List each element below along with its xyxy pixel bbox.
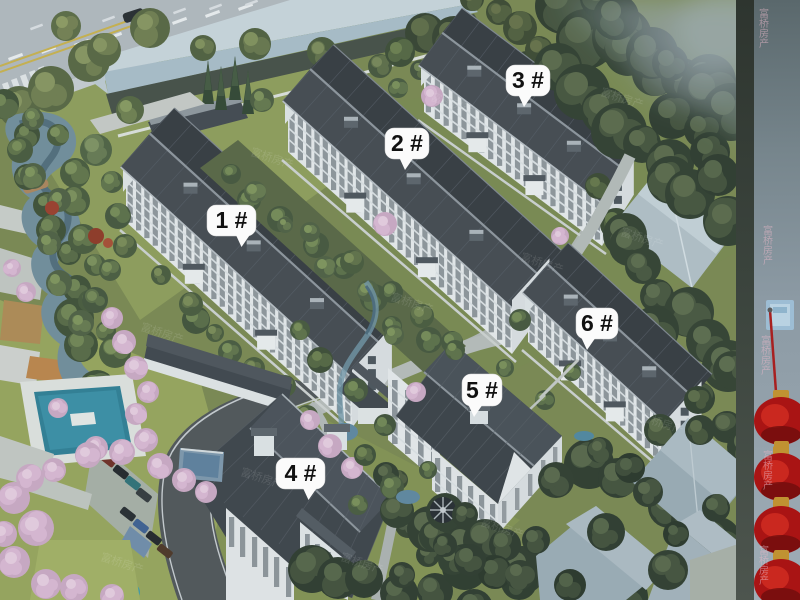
svg-text:5 #: 5 # bbox=[466, 377, 498, 403]
svg-text:富桥房产: 富桥房产 bbox=[759, 334, 771, 376]
svg-text:富桥房产: 富桥房产 bbox=[761, 449, 773, 491]
svg-text:富桥房产: 富桥房产 bbox=[757, 7, 769, 49]
svg-text:1 #: 1 # bbox=[216, 207, 248, 233]
svg-text:富桥房产: 富桥房产 bbox=[761, 224, 773, 266]
svg-text:2 #: 2 # bbox=[391, 130, 423, 156]
svg-text:4 #: 4 # bbox=[285, 460, 317, 486]
svg-text:6 #: 6 # bbox=[581, 310, 613, 336]
svg-text:3 #: 3 # bbox=[512, 67, 544, 93]
svg-text:富桥房产: 富桥房产 bbox=[757, 544, 769, 586]
